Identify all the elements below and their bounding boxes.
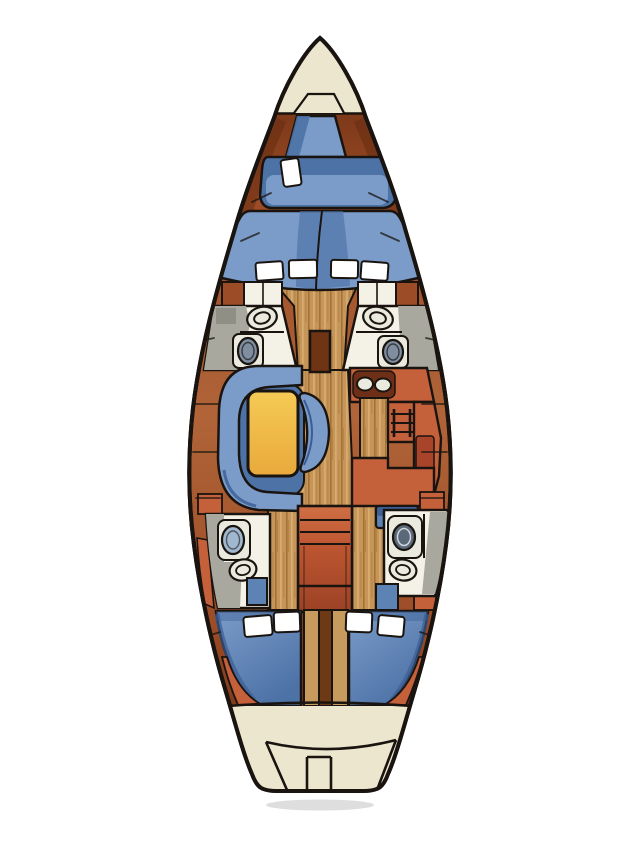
mast-post — [310, 331, 330, 372]
locker — [376, 584, 398, 610]
toilet-icon — [393, 524, 415, 550]
pillow — [255, 261, 283, 281]
galley — [350, 368, 441, 506]
bow-deck — [250, 34, 390, 114]
pillow — [280, 158, 302, 187]
toilet-icon — [238, 338, 258, 364]
transom — [180, 703, 460, 802]
toilet-icon — [222, 526, 244, 554]
salon-table — [248, 391, 298, 476]
pillow — [243, 615, 273, 637]
v-berth — [214, 211, 426, 290]
forepeak-berth — [286, 116, 346, 157]
toilet-icon — [383, 340, 403, 364]
starboard-forward-head — [343, 304, 438, 370]
pillow — [360, 261, 388, 281]
pillow — [274, 612, 301, 633]
aft-divider — [304, 610, 348, 706]
port-aft-head — [206, 514, 270, 608]
companionway-steps — [298, 506, 352, 612]
v-berth-headboard — [260, 157, 396, 208]
pillow — [346, 612, 373, 633]
pillow — [377, 615, 405, 637]
floorplan-svg — [0, 0, 640, 853]
pillow — [289, 260, 317, 278]
pillow — [331, 260, 358, 278]
port-forward-head — [204, 304, 297, 370]
hull-shadow — [266, 800, 374, 811]
locker — [247, 578, 267, 605]
stove-icon — [391, 409, 413, 437]
boat-floorplan — [0, 0, 640, 853]
